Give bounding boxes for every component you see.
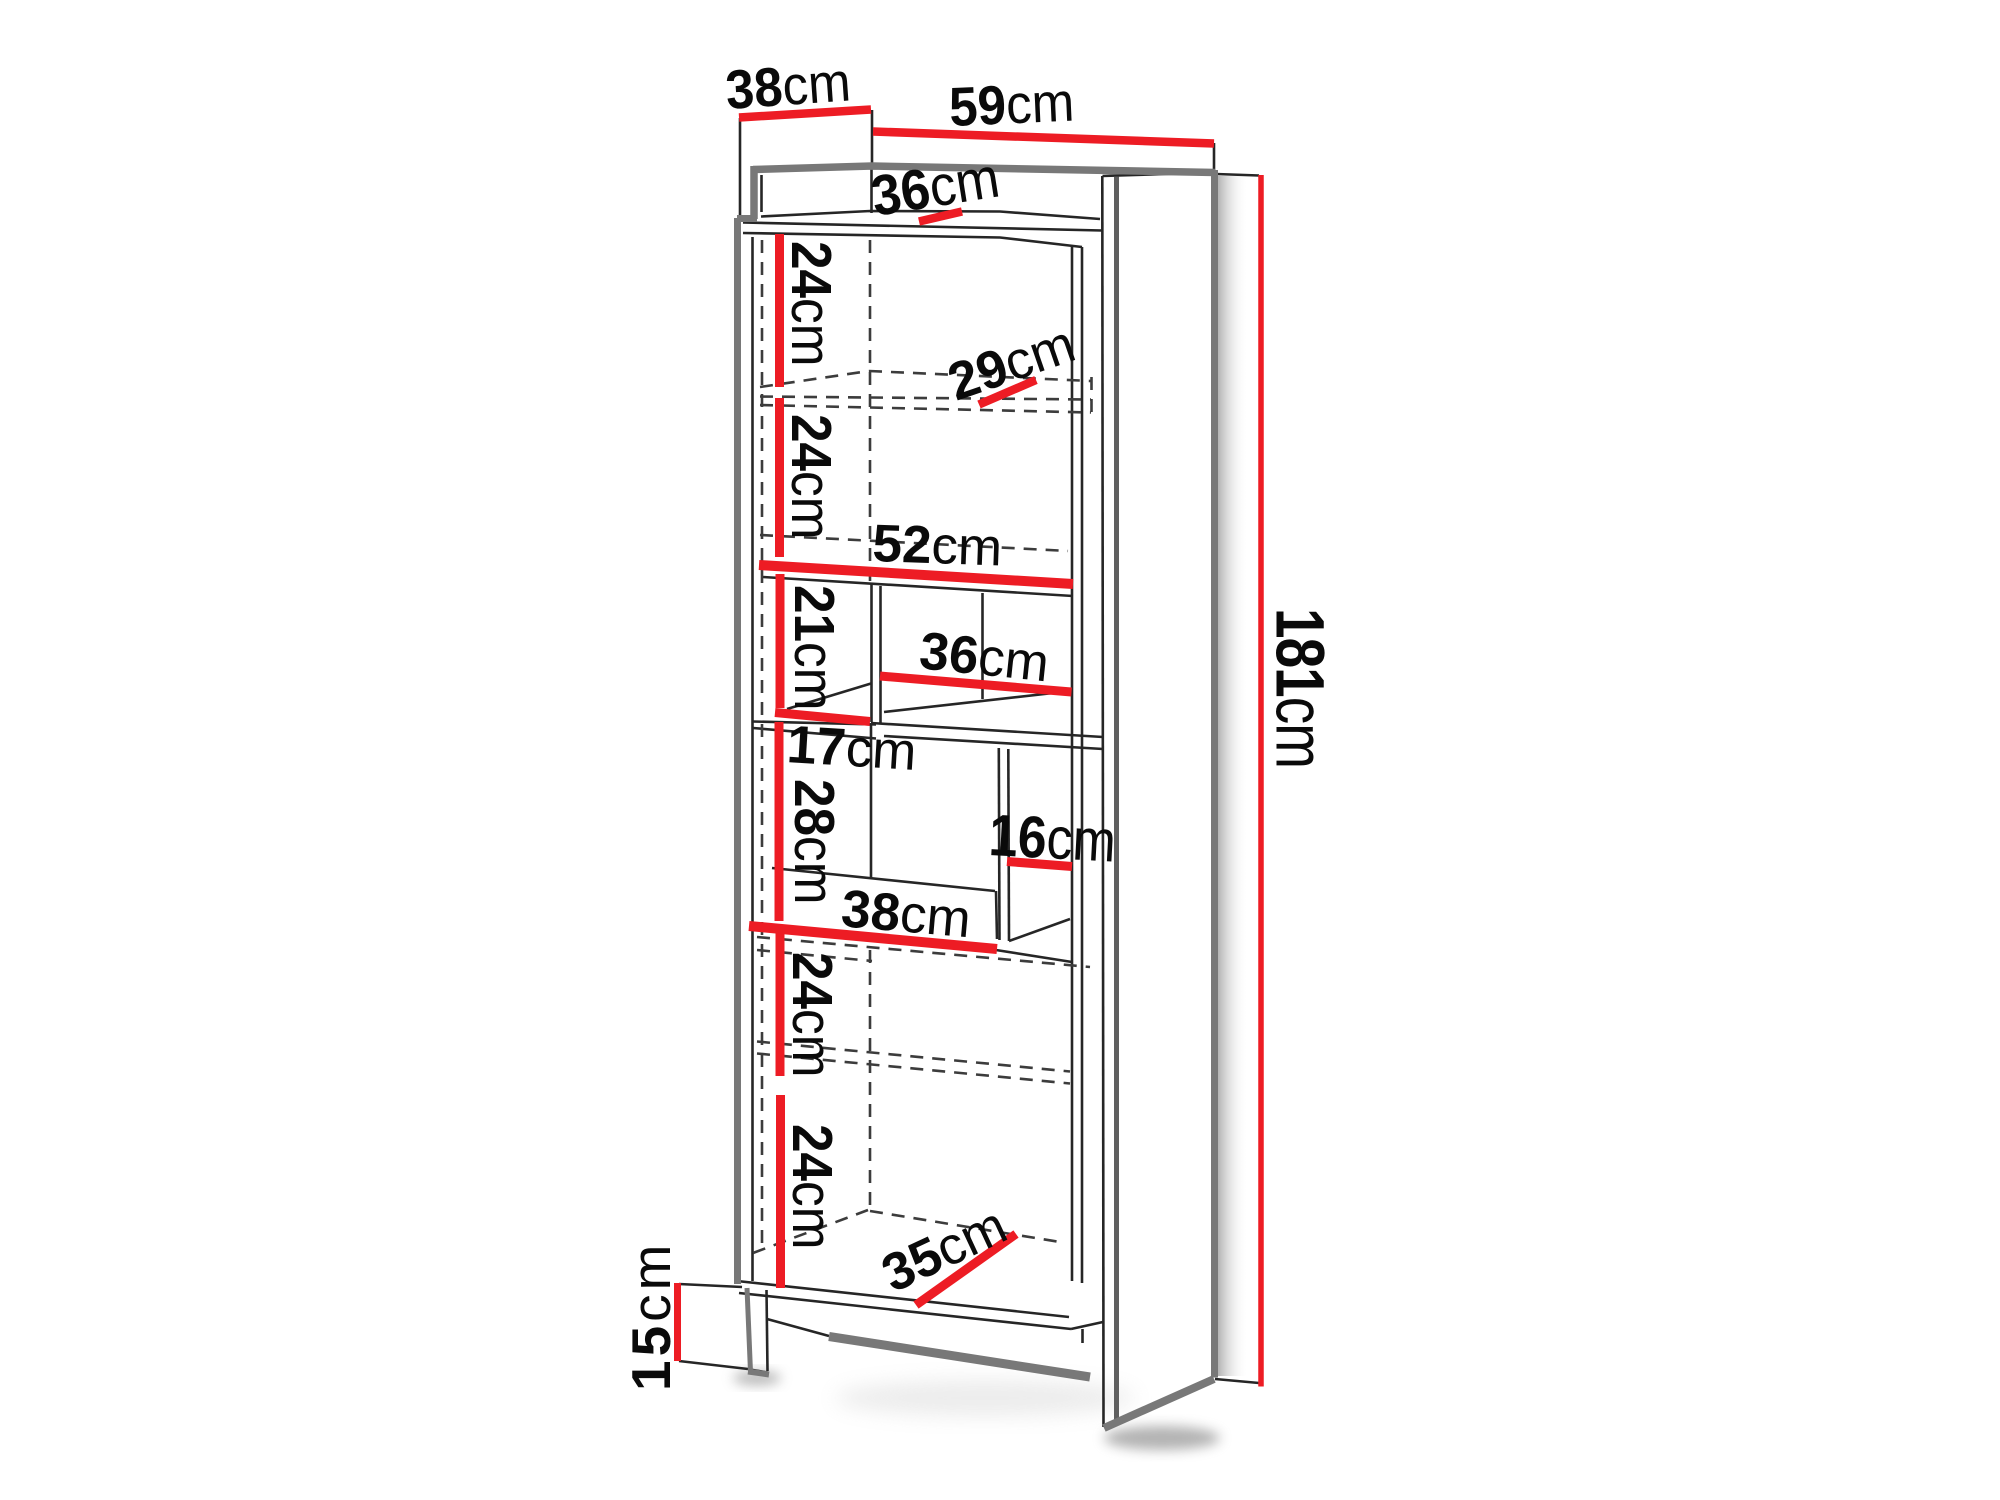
svg-text:181cm: 181cm [1261, 608, 1337, 768]
svg-text:28cm: 28cm [782, 779, 845, 904]
svg-text:15cm: 15cm [620, 1240, 682, 1391]
svg-text:17cm: 17cm [785, 715, 918, 782]
svg-text:24cm: 24cm [780, 1124, 843, 1249]
svg-text:52cm: 52cm [872, 514, 1004, 577]
svg-text:24cm: 24cm [779, 414, 842, 539]
svg-text:21cm: 21cm [782, 585, 845, 710]
svg-text:24cm: 24cm [780, 952, 843, 1077]
svg-text:24cm: 24cm [779, 241, 842, 366]
svg-text:38cm: 38cm [839, 879, 973, 949]
svg-text:38cm: 38cm [724, 52, 853, 122]
svg-text:59cm: 59cm [948, 72, 1076, 138]
svg-text:16cm: 16cm [987, 802, 1117, 874]
